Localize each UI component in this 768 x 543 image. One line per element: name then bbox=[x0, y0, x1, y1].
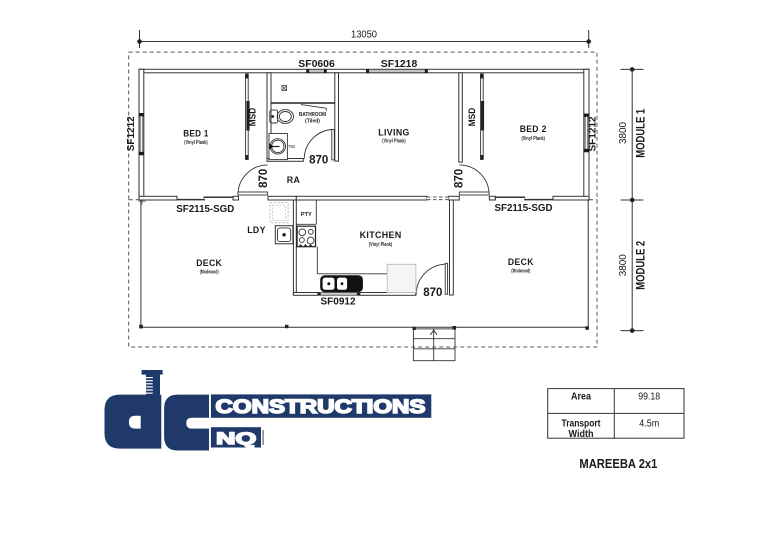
svg-text:DECK: DECK bbox=[508, 257, 534, 268]
svg-text:(Vinyl Plank): (Vinyl Plank) bbox=[184, 140, 208, 146]
svg-text:SF0606: SF0606 bbox=[298, 58, 335, 70]
svg-text:Width: Width bbox=[569, 429, 594, 440]
svg-text:SF1218: SF1218 bbox=[381, 58, 418, 70]
svg-text:MODULE 1: MODULE 1 bbox=[636, 108, 648, 157]
svg-text:13050: 13050 bbox=[351, 30, 377, 41]
svg-text:870: 870 bbox=[453, 169, 465, 188]
svg-text:LIVING: LIVING bbox=[378, 128, 410, 139]
svg-text:(Modwood): (Modwood) bbox=[200, 270, 219, 276]
svg-text:870: 870 bbox=[309, 154, 328, 166]
svg-text:SF1212: SF1212 bbox=[587, 116, 599, 151]
svg-text:(Tiled): (Tiled) bbox=[305, 118, 320, 124]
svg-text:DECK: DECK bbox=[196, 258, 222, 269]
svg-text:(Modwood): (Modwood) bbox=[511, 269, 530, 275]
svg-text:BATHROOM: BATHROOM bbox=[299, 112, 326, 118]
svg-text:870: 870 bbox=[258, 169, 270, 188]
svg-text:870: 870 bbox=[423, 287, 442, 299]
svg-text:KITCHEN: KITCHEN bbox=[360, 230, 402, 241]
svg-text:LDY: LDY bbox=[247, 225, 266, 236]
svg-text:Transport: Transport bbox=[562, 418, 602, 429]
svg-text:SF1212: SF1212 bbox=[125, 116, 137, 151]
svg-text:Area: Area bbox=[571, 392, 591, 403]
svg-text:BED 2: BED 2 bbox=[520, 124, 547, 135]
svg-text:MODULE 2: MODULE 2 bbox=[636, 241, 648, 290]
svg-text:BED 1: BED 1 bbox=[183, 128, 209, 139]
svg-text:(Vinyl Plank): (Vinyl Plank) bbox=[382, 139, 406, 145]
svg-text:SF0912: SF0912 bbox=[321, 296, 356, 308]
svg-text:4.5m: 4.5m bbox=[639, 418, 659, 429]
svg-text:750: 750 bbox=[288, 144, 296, 149]
svg-text:99.18: 99.18 bbox=[638, 392, 660, 403]
svg-text:PTY: PTY bbox=[301, 212, 312, 218]
svg-text:SF2115-SGD: SF2115-SGD bbox=[495, 202, 553, 214]
svg-text:RA: RA bbox=[287, 175, 301, 186]
svg-text:3800: 3800 bbox=[618, 254, 629, 276]
svg-text:3800: 3800 bbox=[618, 122, 629, 144]
svg-text:NQ: NQ bbox=[216, 430, 256, 448]
svg-text:(Vinyl Plank): (Vinyl Plank) bbox=[369, 242, 393, 248]
svg-text:MAREEBA 2x1: MAREEBA 2x1 bbox=[579, 456, 657, 471]
svg-text:(Vinyl Plank): (Vinyl Plank) bbox=[521, 136, 545, 142]
svg-text:SF2115-SGD: SF2115-SGD bbox=[176, 203, 234, 215]
svg-text:CONSTRUCTIONS: CONSTRUCTIONS bbox=[216, 397, 426, 418]
svg-text:MSD: MSD bbox=[248, 107, 258, 126]
svg-text:MSD: MSD bbox=[467, 107, 477, 126]
